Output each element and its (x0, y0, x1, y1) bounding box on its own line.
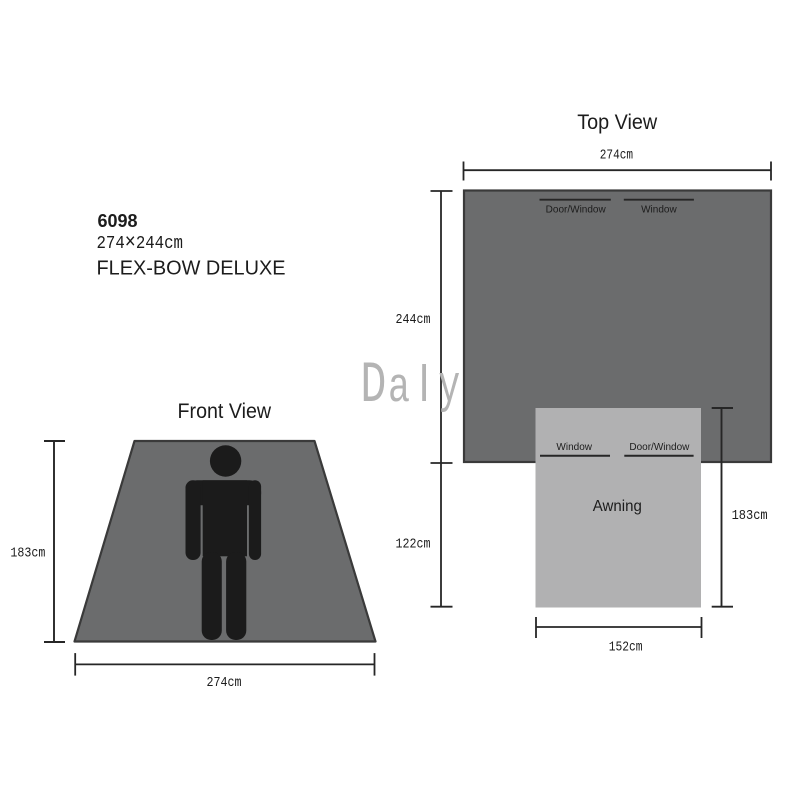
svg-text:Door/Window: Door/Window (546, 205, 607, 216)
svg-text:183cm: 183cm (732, 508, 768, 524)
svg-text:152cm: 152cm (609, 640, 643, 656)
svg-text:183cm: 183cm (10, 546, 45, 562)
svg-text:122cm: 122cm (396, 537, 431, 553)
svg-text:Top View: Top View (577, 110, 657, 134)
svg-text:Awning: Awning (593, 498, 642, 515)
svg-text:D: D (360, 354, 386, 419)
svg-text:Door/Window: Door/Window (629, 442, 690, 453)
svg-text:Window: Window (556, 442, 592, 453)
svg-text:6098: 6098 (98, 211, 138, 231)
svg-text:274cm: 274cm (600, 147, 633, 163)
svg-text:FLEX-BOW DELUXE: FLEX-BOW DELUXE (97, 258, 286, 280)
svg-text:y: y (438, 357, 460, 417)
svg-text:244cm: 244cm (396, 312, 431, 328)
svg-text:274×244cm: 274×244cm (97, 232, 184, 255)
svg-text:Front View: Front View (178, 399, 272, 423)
svg-text:a: a (388, 360, 410, 416)
svg-text:Window: Window (641, 205, 677, 216)
svg-text:274cm: 274cm (207, 675, 242, 691)
